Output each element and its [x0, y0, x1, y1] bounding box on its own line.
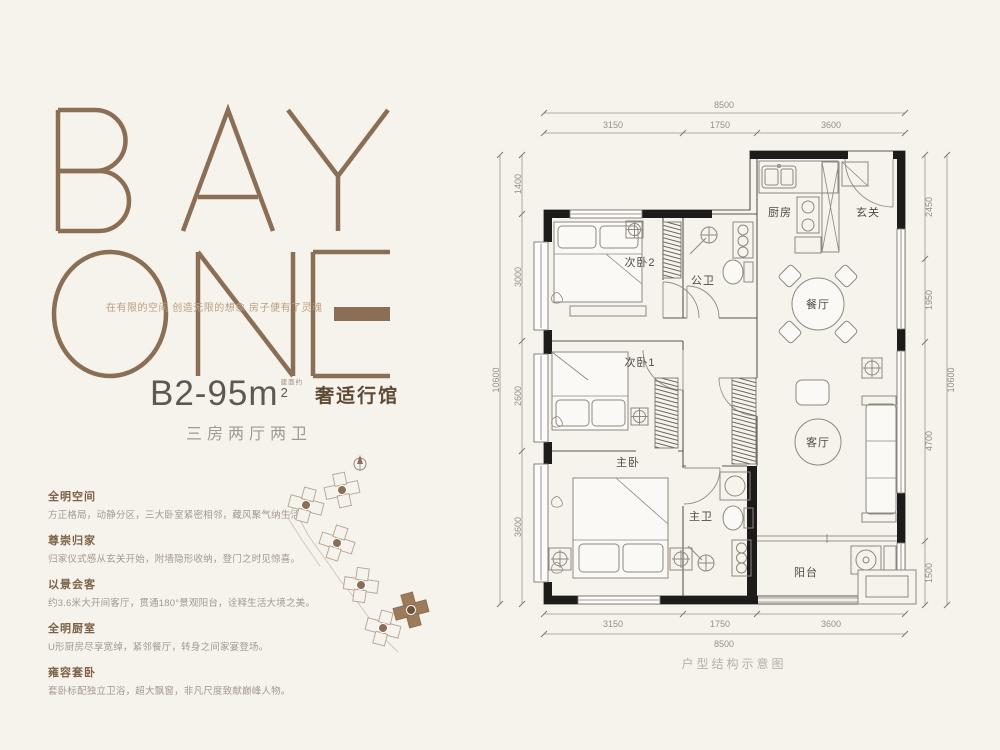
dim-right-seg: 2450	[924, 197, 934, 217]
room-label-dining: 餐厅	[806, 297, 830, 311]
ceiling-lamp-icon	[631, 408, 648, 425]
site-plan	[268, 440, 458, 675]
room-label-master-bath: 主卫	[689, 510, 713, 523]
furniture	[549, 161, 896, 578]
dim-right-seg: 1950	[924, 290, 934, 310]
dim-bottom-seg: 1750	[710, 619, 730, 629]
north-compass-icon	[354, 455, 366, 471]
dim-left-seg: 1400	[513, 174, 523, 194]
stove-icon	[795, 197, 821, 253]
sofa-icon	[862, 396, 896, 522]
dim-top-total: 8500	[714, 100, 734, 110]
wardrobe-hatch	[732, 378, 756, 464]
building-cluster	[342, 566, 380, 604]
dim-right-seg: 1500	[924, 563, 934, 583]
dim-bottom-seg: 3150	[603, 619, 623, 629]
vanity-icon	[733, 222, 753, 258]
coffee-table-icon	[796, 380, 829, 405]
room-label-balcony: 阳台	[794, 565, 818, 579]
logo-word-one: ONE	[54, 252, 390, 376]
room-label-bedroom2: 次卧2	[624, 255, 655, 269]
dim-right-total: 10600	[946, 367, 956, 392]
ceiling-lamp-icon	[862, 358, 882, 378]
fridge-icon	[842, 162, 868, 186]
building-cluster-highlighted	[390, 589, 432, 631]
dim-left-total: 10600	[491, 367, 501, 392]
equipment-platform	[858, 570, 916, 604]
bed-icon	[552, 352, 628, 430]
tall-cabinet-icon	[822, 162, 839, 252]
dim-left-seg: 3000	[513, 267, 523, 287]
bayone-logo: BAY ONE	[46, 102, 394, 402]
wardrobe-hatch	[655, 378, 678, 448]
floor-plan: 8500 3150 1750 3600 10600 1400 3000 2600…	[480, 90, 980, 675]
unit-area-superscript: 建面约 2	[281, 376, 304, 399]
dim-top-seg: 3600	[821, 120, 841, 130]
dim-bottom-total: 8500	[714, 639, 734, 649]
unit-info: B2-95m 建面约 2 奢适行馆	[150, 376, 399, 411]
wardrobe-hatch	[663, 222, 681, 278]
floorplan-caption: 户型结构示意图	[681, 656, 786, 671]
plant-icon	[552, 563, 563, 574]
logo-word-bay: BAY	[58, 110, 388, 231]
door-arc	[663, 282, 699, 318]
unit-area-exponent: 2	[281, 386, 288, 399]
plant-icon	[552, 497, 563, 508]
dim-top-seg: 3150	[603, 120, 623, 130]
poster-page: BAY ONE 在有限的空间 创造无限的想象 房子便有了灵魂 B2-95m 建面…	[0, 0, 1000, 750]
building-cluster	[316, 522, 359, 565]
bed-icon	[573, 478, 668, 578]
nightstand-icon	[549, 548, 571, 570]
kitchen-sink-icon	[759, 161, 838, 193]
dim-left-seg: 3600	[513, 517, 523, 537]
dim-right-seg: 4700	[924, 431, 934, 451]
sink-icon	[720, 472, 750, 500]
nightstand-icon	[670, 548, 692, 570]
room-label-entry: 玄关	[856, 205, 880, 219]
dim-left-seg: 2600	[513, 386, 523, 406]
brand-tagline: 在有限的空间 创造无限的想象 房子便有了灵魂	[106, 299, 346, 314]
building-cluster	[322, 470, 362, 510]
dim-bottom-seg: 3600	[821, 619, 841, 629]
shower-icon	[690, 227, 717, 254]
room-label-master: 主卧	[616, 456, 640, 469]
unit-model: B2-95m	[150, 376, 279, 411]
room-label-guest-bath: 公卫	[691, 275, 715, 287]
room-label-kitchen: 厨房	[768, 206, 792, 219]
toilet-icon	[723, 260, 753, 284]
room-label-living: 客厅	[806, 435, 830, 449]
door-arc	[684, 468, 720, 504]
room-label-bedroom1: 次卧1	[624, 355, 655, 369]
feature-desc: 套卧标配独立卫浴，超大飘窗，非凡尺度致献巅峰人物。	[48, 683, 310, 697]
door-arc	[845, 159, 893, 207]
door-arc	[687, 286, 719, 318]
building-cluster	[285, 484, 327, 526]
unit-title: 奢适行馆	[315, 381, 399, 408]
bed-icon	[554, 222, 646, 316]
dim-top-seg: 1750	[710, 120, 730, 130]
